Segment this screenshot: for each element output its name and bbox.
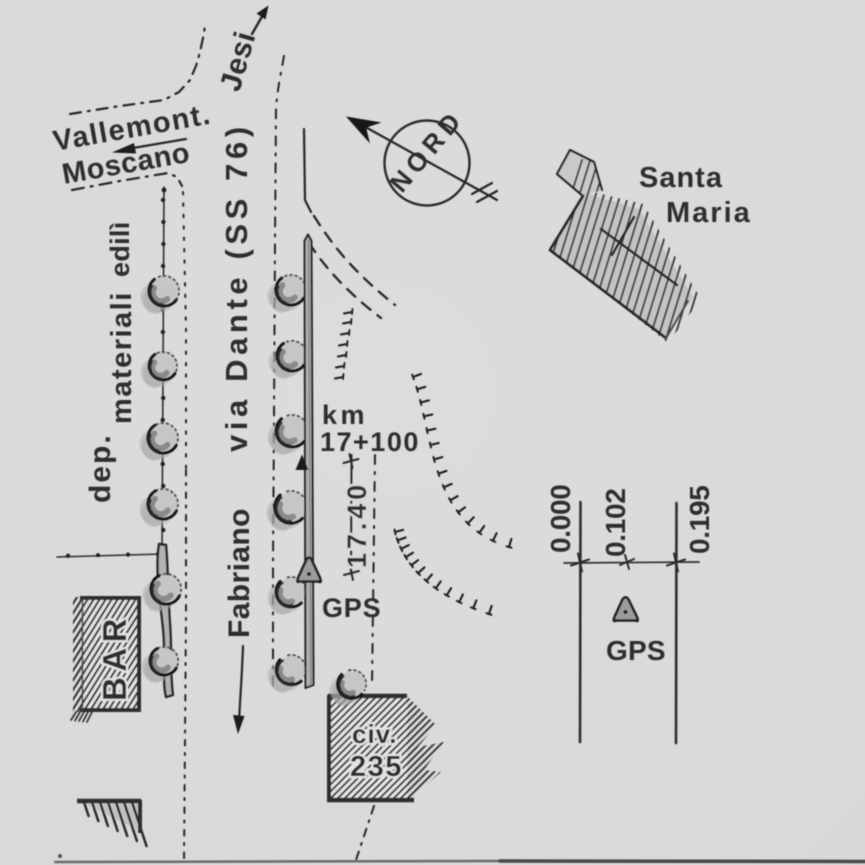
svg-text:0.000: 0.000 <box>545 484 576 553</box>
svg-text:Maria: Maria <box>666 197 752 229</box>
svg-text:17+100: 17+100 <box>320 427 420 457</box>
svg-text:GPS: GPS <box>606 635 666 666</box>
svg-text:edilì: edilì <box>105 221 135 277</box>
svg-text:GPS: GPS <box>322 593 381 623</box>
svg-text:Santa: Santa <box>639 162 723 194</box>
svg-text:dep.: dep. <box>84 433 117 503</box>
svg-text:materiali: materiali <box>106 291 138 424</box>
svg-text:235: 235 <box>350 751 403 783</box>
svg-text:Fabriano: Fabriano <box>223 508 256 638</box>
svg-text:17.40: 17.40 <box>342 481 372 568</box>
svg-text:0.195: 0.195 <box>684 485 715 554</box>
svg-text:via Dante (SS 76): via Dante (SS 76) <box>219 122 254 452</box>
svg-text:km: km <box>322 400 368 430</box>
svg-text:civ.: civ. <box>352 719 397 749</box>
svg-text:0.102: 0.102 <box>600 488 631 557</box>
svg-text:BAR: BAR <box>96 613 133 701</box>
